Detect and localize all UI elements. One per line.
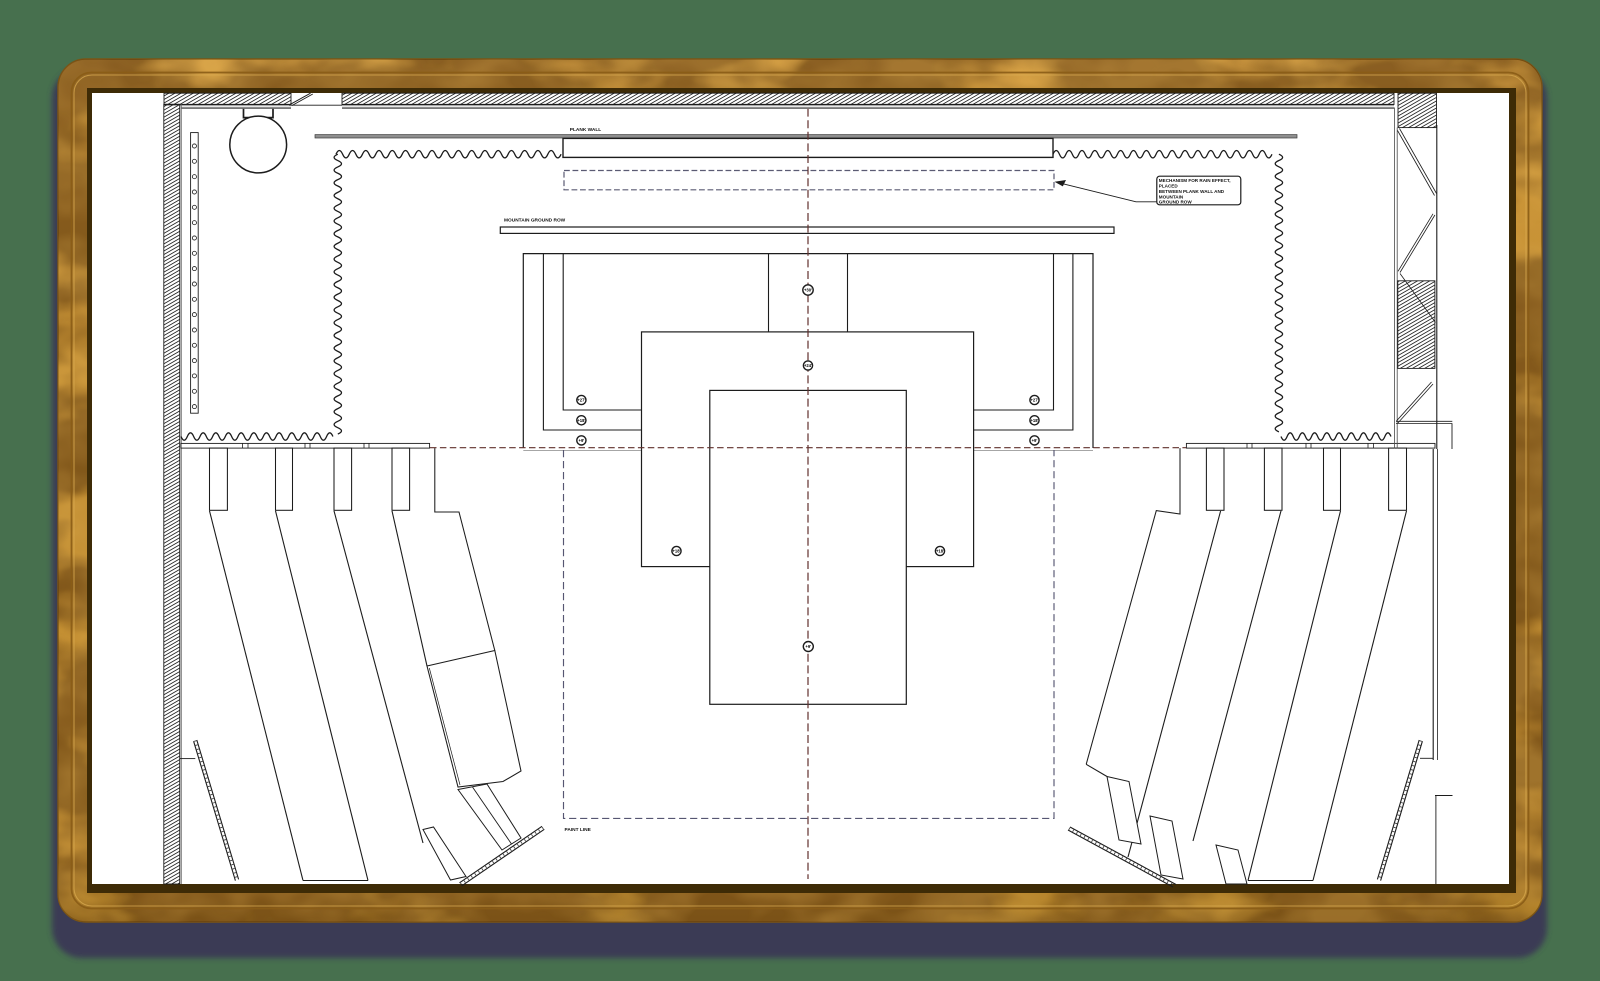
- svg-text:+30': +30': [804, 288, 812, 293]
- svg-text:BETWEEN PLANK WALL AND: BETWEEN PLANK WALL AND: [1159, 189, 1225, 194]
- svg-text:+24': +24': [804, 363, 812, 368]
- svg-text:GROUND ROW: GROUND ROW: [1159, 200, 1193, 205]
- svg-text:+18': +18': [936, 549, 944, 554]
- svg-text:+27': +27': [1030, 398, 1038, 403]
- svg-text:+9': +9': [1032, 438, 1038, 443]
- svg-text:PAINT LINE: PAINT LINE: [565, 827, 592, 833]
- svg-text:MECHANISM FOR RAIN EFFECT,: MECHANISM FOR RAIN EFFECT,: [1159, 178, 1231, 183]
- svg-text:+18': +18': [672, 549, 680, 554]
- svg-text:+18': +18': [1030, 418, 1038, 423]
- svg-text:+9': +9': [805, 644, 811, 649]
- svg-text:MOUNTAIN: MOUNTAIN: [1159, 194, 1184, 199]
- svg-text:PLANK WALL: PLANK WALL: [570, 127, 602, 133]
- svg-text:+27': +27': [577, 398, 585, 403]
- svg-text:+18': +18': [577, 418, 585, 423]
- svg-text:MOUNTAIN GROUND ROW: MOUNTAIN GROUND ROW: [504, 217, 566, 223]
- svg-text:PLACED: PLACED: [1159, 183, 1179, 188]
- svg-text:+9': +9': [579, 438, 585, 443]
